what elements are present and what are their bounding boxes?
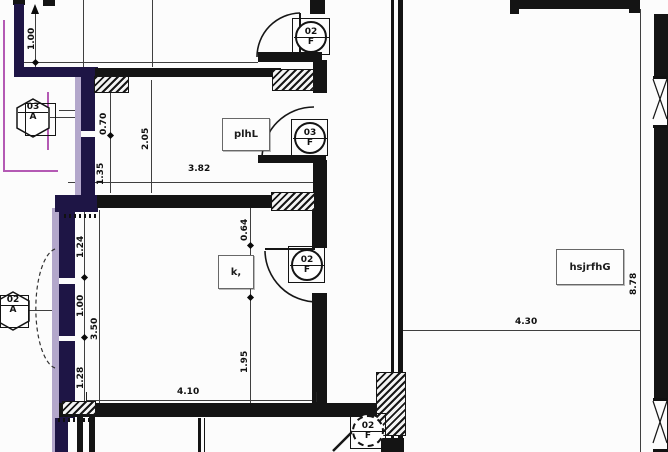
wall-segment [59, 208, 75, 418]
insulation-dots [64, 214, 96, 218]
window-tag-frame [0, 295, 29, 328]
wall-segment [198, 418, 201, 452]
door-tag-frame [291, 119, 328, 156]
dimension-label: 1.24 [76, 236, 86, 258]
wall-segment [510, 0, 640, 9]
window-symbol [653, 398, 667, 452]
dim-line [87, 400, 317, 401]
wall-segment [204, 418, 205, 452]
hatched-wall-block [272, 193, 314, 210]
wall-segment [89, 417, 95, 452]
window-tag-frame [25, 103, 56, 136]
room-label-hall: plhL [222, 118, 270, 151]
dimension-label: 3.82 [188, 164, 210, 174]
dim-line [250, 208, 251, 403]
extension-line [83, 0, 84, 68]
dim-marker [247, 242, 254, 249]
dim-marker [32, 59, 39, 66]
wall-segment [81, 77, 95, 207]
dimension-label: 2.05 [141, 128, 151, 150]
floor-plan: 1.00 0.70 1.35 2.05 3.82 0.64 0.80 1.95 … [0, 0, 668, 452]
wall-segment [59, 403, 400, 417]
wall-segment [310, 0, 325, 14]
wall-segment [510, 0, 519, 14]
dimension-label: 1.00 [76, 295, 86, 317]
exterior-outline [3, 170, 58, 172]
window-symbol [653, 76, 667, 128]
insulation-dots [58, 418, 94, 422]
dimension-label: 4.30 [515, 317, 537, 327]
dim-marker [81, 334, 88, 341]
dimension-label: 3.50 [90, 318, 100, 340]
room-label-text: plhL [234, 129, 258, 140]
room-label-text: k, [231, 267, 241, 278]
wall-segment [14, 67, 98, 77]
wall-segment [95, 68, 281, 77]
dim-line [640, 9, 641, 452]
window-opening [59, 278, 75, 284]
dim-line [151, 80, 152, 193]
room-label-text: hsjrfhG [569, 262, 610, 273]
dimension-label: 1.95 [240, 351, 250, 373]
dim-line [402, 330, 641, 331]
dim-tick [316, 392, 317, 402]
door-tag-frame [288, 246, 325, 283]
window-opening [81, 131, 95, 137]
dimension-label: 0.70 [99, 113, 109, 135]
wall-end-tick [629, 4, 640, 13]
dimension-label: 0.64 [240, 219, 250, 241]
dimension-label: 1.35 [96, 163, 106, 185]
wall-insulation-layer [52, 208, 59, 452]
hatched-wall-block [273, 70, 313, 90]
exterior-outline [3, 20, 5, 172]
dimension-label: 4.10 [177, 387, 199, 397]
extension-line [152, 0, 153, 67]
room-label-kitchen: k, [218, 255, 254, 289]
room-label-main: hsjrfhG [556, 249, 624, 285]
dim-tick [86, 392, 87, 402]
door-tag-frame [292, 18, 330, 55]
wall-segment [313, 60, 327, 93]
hatched-wall-block [63, 402, 95, 414]
wall-segment [312, 208, 327, 248]
door-tag-frame [350, 413, 386, 449]
dimension-label: 1.00 [27, 28, 37, 50]
dimension-label: 8.78 [629, 273, 639, 295]
dim-marker [247, 294, 254, 301]
hatched-wall-block [95, 77, 128, 92]
window-opening [59, 336, 75, 341]
dim-marker [81, 274, 88, 281]
wall-segment [55, 418, 68, 452]
dim-line [99, 210, 100, 403]
wall-segment [43, 0, 55, 6]
wall-segment [312, 293, 327, 403]
wall-segment [77, 417, 83, 452]
dimension-label: 1.28 [76, 367, 86, 389]
wall-face-line [24, 62, 258, 63]
